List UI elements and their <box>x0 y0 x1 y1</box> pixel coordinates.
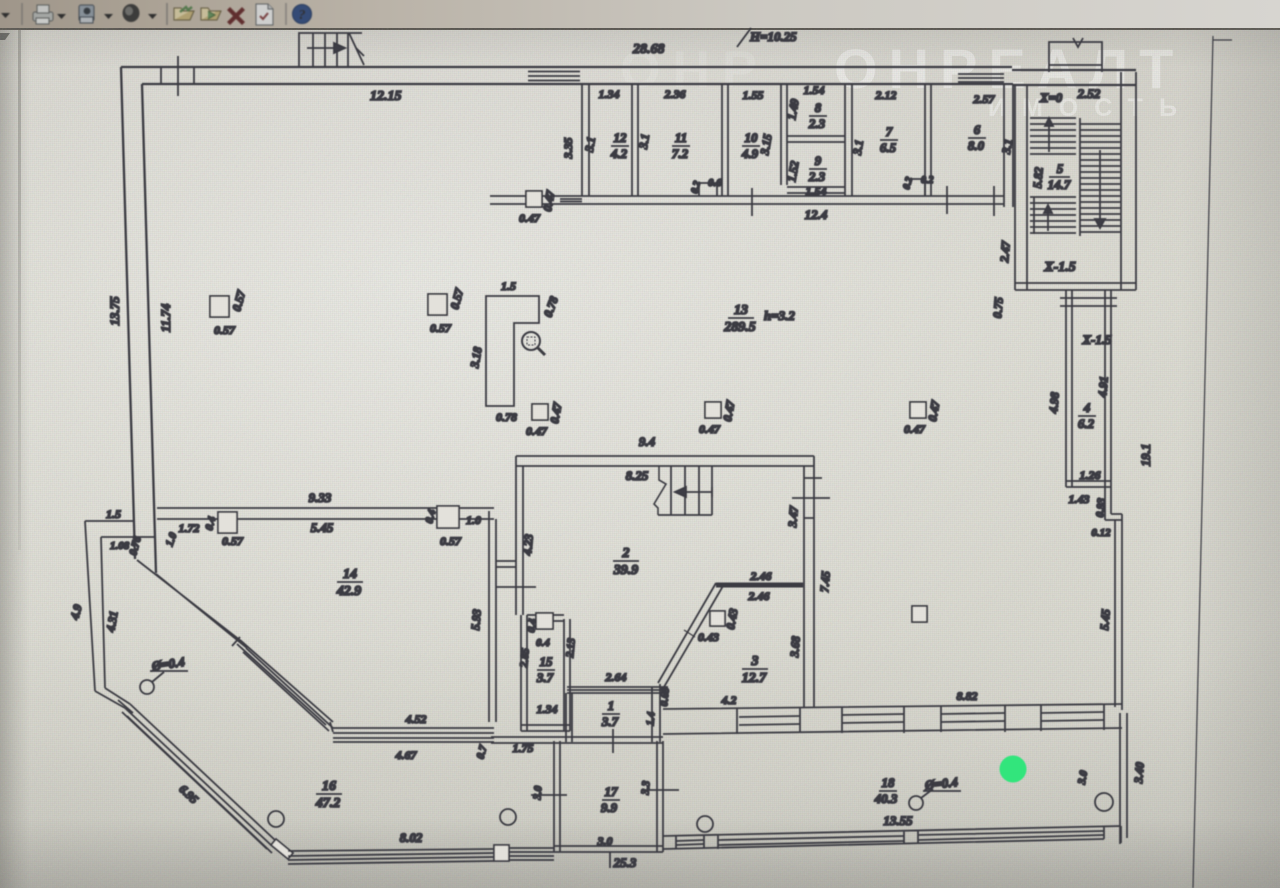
svg-text:X-1.5: X-1.5 <box>1043 260 1076 275</box>
svg-text:0.78: 0.78 <box>496 410 517 424</box>
svg-text:5.93: 5.93 <box>468 609 484 631</box>
svg-text:3.15: 3.15 <box>757 133 775 157</box>
svg-text:3.0: 3.0 <box>1076 769 1090 786</box>
svg-text:4.9: 4.9 <box>67 603 85 622</box>
svg-text:13.75: 13.75 <box>107 296 122 326</box>
svg-text:1.55: 1.55 <box>743 88 764 102</box>
svg-text:14: 14 <box>343 567 357 582</box>
svg-text:3.40: 3.40 <box>1131 762 1147 785</box>
svg-text:9.33: 9.33 <box>309 490 332 505</box>
svg-text:11.74: 11.74 <box>158 303 173 332</box>
svg-text:2.3: 2.3 <box>808 169 826 184</box>
svg-text:4.9: 4.9 <box>741 146 759 161</box>
svg-text:2.36: 2.36 <box>664 87 686 101</box>
svg-text:39.9: 39.9 <box>613 563 639 578</box>
svg-text:0.47: 0.47 <box>925 398 943 422</box>
svg-text:0.57: 0.57 <box>440 534 462 548</box>
svg-text:16: 16 <box>322 779 336 794</box>
svg-text:40.3: 40.3 <box>874 791 898 806</box>
svg-text:0.75: 0.75 <box>990 297 1006 319</box>
svg-text:0.6: 0.6 <box>708 177 722 189</box>
svg-text:25.3: 25.3 <box>613 855 637 870</box>
svg-text:4.98: 4.98 <box>1046 392 1062 415</box>
svg-text:2.85: 2.85 <box>518 647 532 669</box>
svg-text:1.72: 1.72 <box>179 521 200 535</box>
svg-text:1.34: 1.34 <box>537 702 558 716</box>
svg-text:2.46: 2.46 <box>748 589 770 603</box>
svg-text:1.26: 1.26 <box>1080 468 1101 482</box>
svg-text:1.5: 1.5 <box>501 279 516 293</box>
svg-text:3.1: 3.1 <box>999 138 1016 156</box>
svg-text:1.34: 1.34 <box>599 87 620 101</box>
svg-text:4.91: 4.91 <box>1095 376 1111 399</box>
svg-text:2.47: 2.47 <box>997 240 1013 264</box>
svg-text:1.4: 1.4 <box>644 711 657 726</box>
svg-text:0.57: 0.57 <box>447 286 466 311</box>
svg-text:1.5: 1.5 <box>106 507 121 521</box>
svg-text:0.93: 0.93 <box>1094 497 1108 518</box>
svg-text:0.57: 0.57 <box>214 323 236 337</box>
svg-text:2.57: 2.57 <box>973 92 996 106</box>
svg-text:X=0: X=0 <box>1039 90 1063 105</box>
svg-text:3.1: 3.1 <box>582 136 599 154</box>
svg-text:8.25: 8.25 <box>626 468 649 483</box>
svg-text:0.47: 0.47 <box>904 422 926 436</box>
svg-text:12.7: 12.7 <box>742 671 768 686</box>
svg-text:H=10.25: H=10.25 <box>749 29 797 44</box>
svg-text:0.4: 0.4 <box>203 515 218 532</box>
svg-text:h=3.2: h=3.2 <box>764 308 795 323</box>
svg-text:9: 9 <box>815 153 822 168</box>
svg-text:10: 10 <box>745 130 759 145</box>
svg-text:12.4: 12.4 <box>805 207 828 222</box>
svg-text:2: 2 <box>622 546 630 561</box>
svg-text:0.2: 0.2 <box>901 176 915 191</box>
svg-text:17: 17 <box>605 784 619 799</box>
svg-text:3.47: 3.47 <box>785 505 801 529</box>
svg-text:15: 15 <box>540 654 554 669</box>
svg-text:1.08: 1.08 <box>110 540 130 552</box>
svg-text:0.69: 0.69 <box>658 686 672 707</box>
svg-text:0.47: 0.47 <box>699 422 721 436</box>
svg-text:8.0: 8.0 <box>968 138 985 153</box>
svg-text:0.2: 0.2 <box>689 180 703 195</box>
svg-text:Ø=0.4: Ø=0.4 <box>923 774 959 793</box>
svg-text:3.7: 3.7 <box>601 714 619 729</box>
svg-text:2.3: 2.3 <box>808 116 826 131</box>
svg-text:0.76: 0.76 <box>127 535 144 557</box>
svg-text:1.54: 1.54 <box>804 83 825 97</box>
svg-text:47.2: 47.2 <box>315 796 341 811</box>
svg-text:42.9: 42.9 <box>336 584 362 599</box>
svg-text:1.54: 1.54 <box>806 184 827 198</box>
svg-text:0.57: 0.57 <box>229 288 248 313</box>
svg-text:0.78: 0.78 <box>541 295 561 320</box>
svg-text:0.4: 0.4 <box>536 637 550 649</box>
svg-text:4.2: 4.2 <box>610 146 628 161</box>
svg-text:3.0: 3.0 <box>531 785 544 801</box>
svg-text:1.43: 1.43 <box>1069 492 1090 506</box>
svg-text:0.47: 0.47 <box>526 424 548 438</box>
svg-text:0.4: 0.4 <box>525 617 539 633</box>
svg-text:2.46: 2.46 <box>750 569 772 583</box>
svg-text:3.3: 3.3 <box>639 780 652 796</box>
svg-text:1.0: 1.0 <box>164 531 180 548</box>
svg-text:2.52: 2.52 <box>1077 86 1101 101</box>
svg-text:0.7: 0.7 <box>475 744 490 761</box>
svg-text:5.45: 5.45 <box>311 520 334 535</box>
svg-text:1.49: 1.49 <box>784 98 801 121</box>
svg-text:3.1: 3.1 <box>850 139 867 157</box>
svg-text:1.0: 1.0 <box>466 513 481 527</box>
svg-text:4.52: 4.52 <box>405 712 427 726</box>
svg-text:5.45: 5.45 <box>1097 609 1113 631</box>
svg-text:4: 4 <box>1083 400 1091 415</box>
svg-text:6: 6 <box>974 122 981 137</box>
svg-text:6.2: 6.2 <box>1078 416 1095 431</box>
svg-text:1: 1 <box>608 698 615 713</box>
svg-text:3.18: 3.18 <box>467 346 485 370</box>
svg-text:13: 13 <box>734 303 748 318</box>
svg-text:0.43: 0.43 <box>723 607 740 630</box>
svg-text:3.35: 3.35 <box>561 138 575 160</box>
svg-text:8.82: 8.82 <box>957 689 978 703</box>
svg-text:4.23: 4.23 <box>520 534 536 557</box>
svg-text:0.47: 0.47 <box>547 400 565 424</box>
svg-text:8: 8 <box>815 100 822 115</box>
svg-text:11: 11 <box>675 130 687 145</box>
svg-text:18: 18 <box>882 775 896 790</box>
svg-text:19.1: 19.1 <box>1138 444 1153 467</box>
svg-text:14.7: 14.7 <box>1048 177 1071 192</box>
svg-text:7: 7 <box>886 124 893 139</box>
svg-text:6.95: 6.95 <box>176 782 201 807</box>
svg-text:4.67: 4.67 <box>395 748 418 762</box>
svg-text:8.02: 8.02 <box>400 830 423 845</box>
svg-text:9.4: 9.4 <box>639 434 656 449</box>
svg-text:289.5: 289.5 <box>723 320 756 335</box>
svg-text:0.57: 0.57 <box>430 321 452 335</box>
svg-text:9.9: 9.9 <box>601 800 618 815</box>
svg-text:7.2: 7.2 <box>672 146 689 161</box>
svg-text:X-1.5: X-1.5 <box>1081 332 1112 347</box>
svg-text:12.15: 12.15 <box>370 89 402 104</box>
svg-text:0.47: 0.47 <box>519 211 541 225</box>
svg-text:2.13: 2.13 <box>564 637 578 659</box>
svg-text:0.12: 0.12 <box>1091 527 1111 539</box>
svg-text:2.12: 2.12 <box>875 88 897 102</box>
svg-text:5.82: 5.82 <box>1030 167 1046 189</box>
svg-text:3.1: 3.1 <box>636 133 653 151</box>
svg-text:4.2: 4.2 <box>721 693 737 707</box>
svg-text:0.2: 0.2 <box>921 175 934 186</box>
svg-text:0.47: 0.47 <box>720 398 738 422</box>
svg-text:1.75: 1.75 <box>513 741 534 755</box>
svg-text:7.45: 7.45 <box>817 571 833 593</box>
svg-text:2.64: 2.64 <box>605 670 627 684</box>
svg-text:13.55: 13.55 <box>883 813 913 828</box>
svg-text:1.52: 1.52 <box>784 160 801 183</box>
svg-text:0.57: 0.57 <box>222 534 244 548</box>
svg-text:12: 12 <box>614 130 628 145</box>
svg-text:5: 5 <box>1057 161 1064 176</box>
svg-text:0.47: 0.47 <box>540 188 558 212</box>
svg-text:6.5: 6.5 <box>880 140 897 155</box>
svg-text:0.43: 0.43 <box>698 630 719 644</box>
svg-text:4.31: 4.31 <box>103 610 121 634</box>
svg-text:28.68: 28.68 <box>632 42 665 57</box>
svg-text:3.7: 3.7 <box>536 670 554 685</box>
svg-text:3.68: 3.68 <box>787 636 803 659</box>
svg-text:3.0: 3.0 <box>597 834 613 848</box>
svg-text:3: 3 <box>751 654 759 669</box>
